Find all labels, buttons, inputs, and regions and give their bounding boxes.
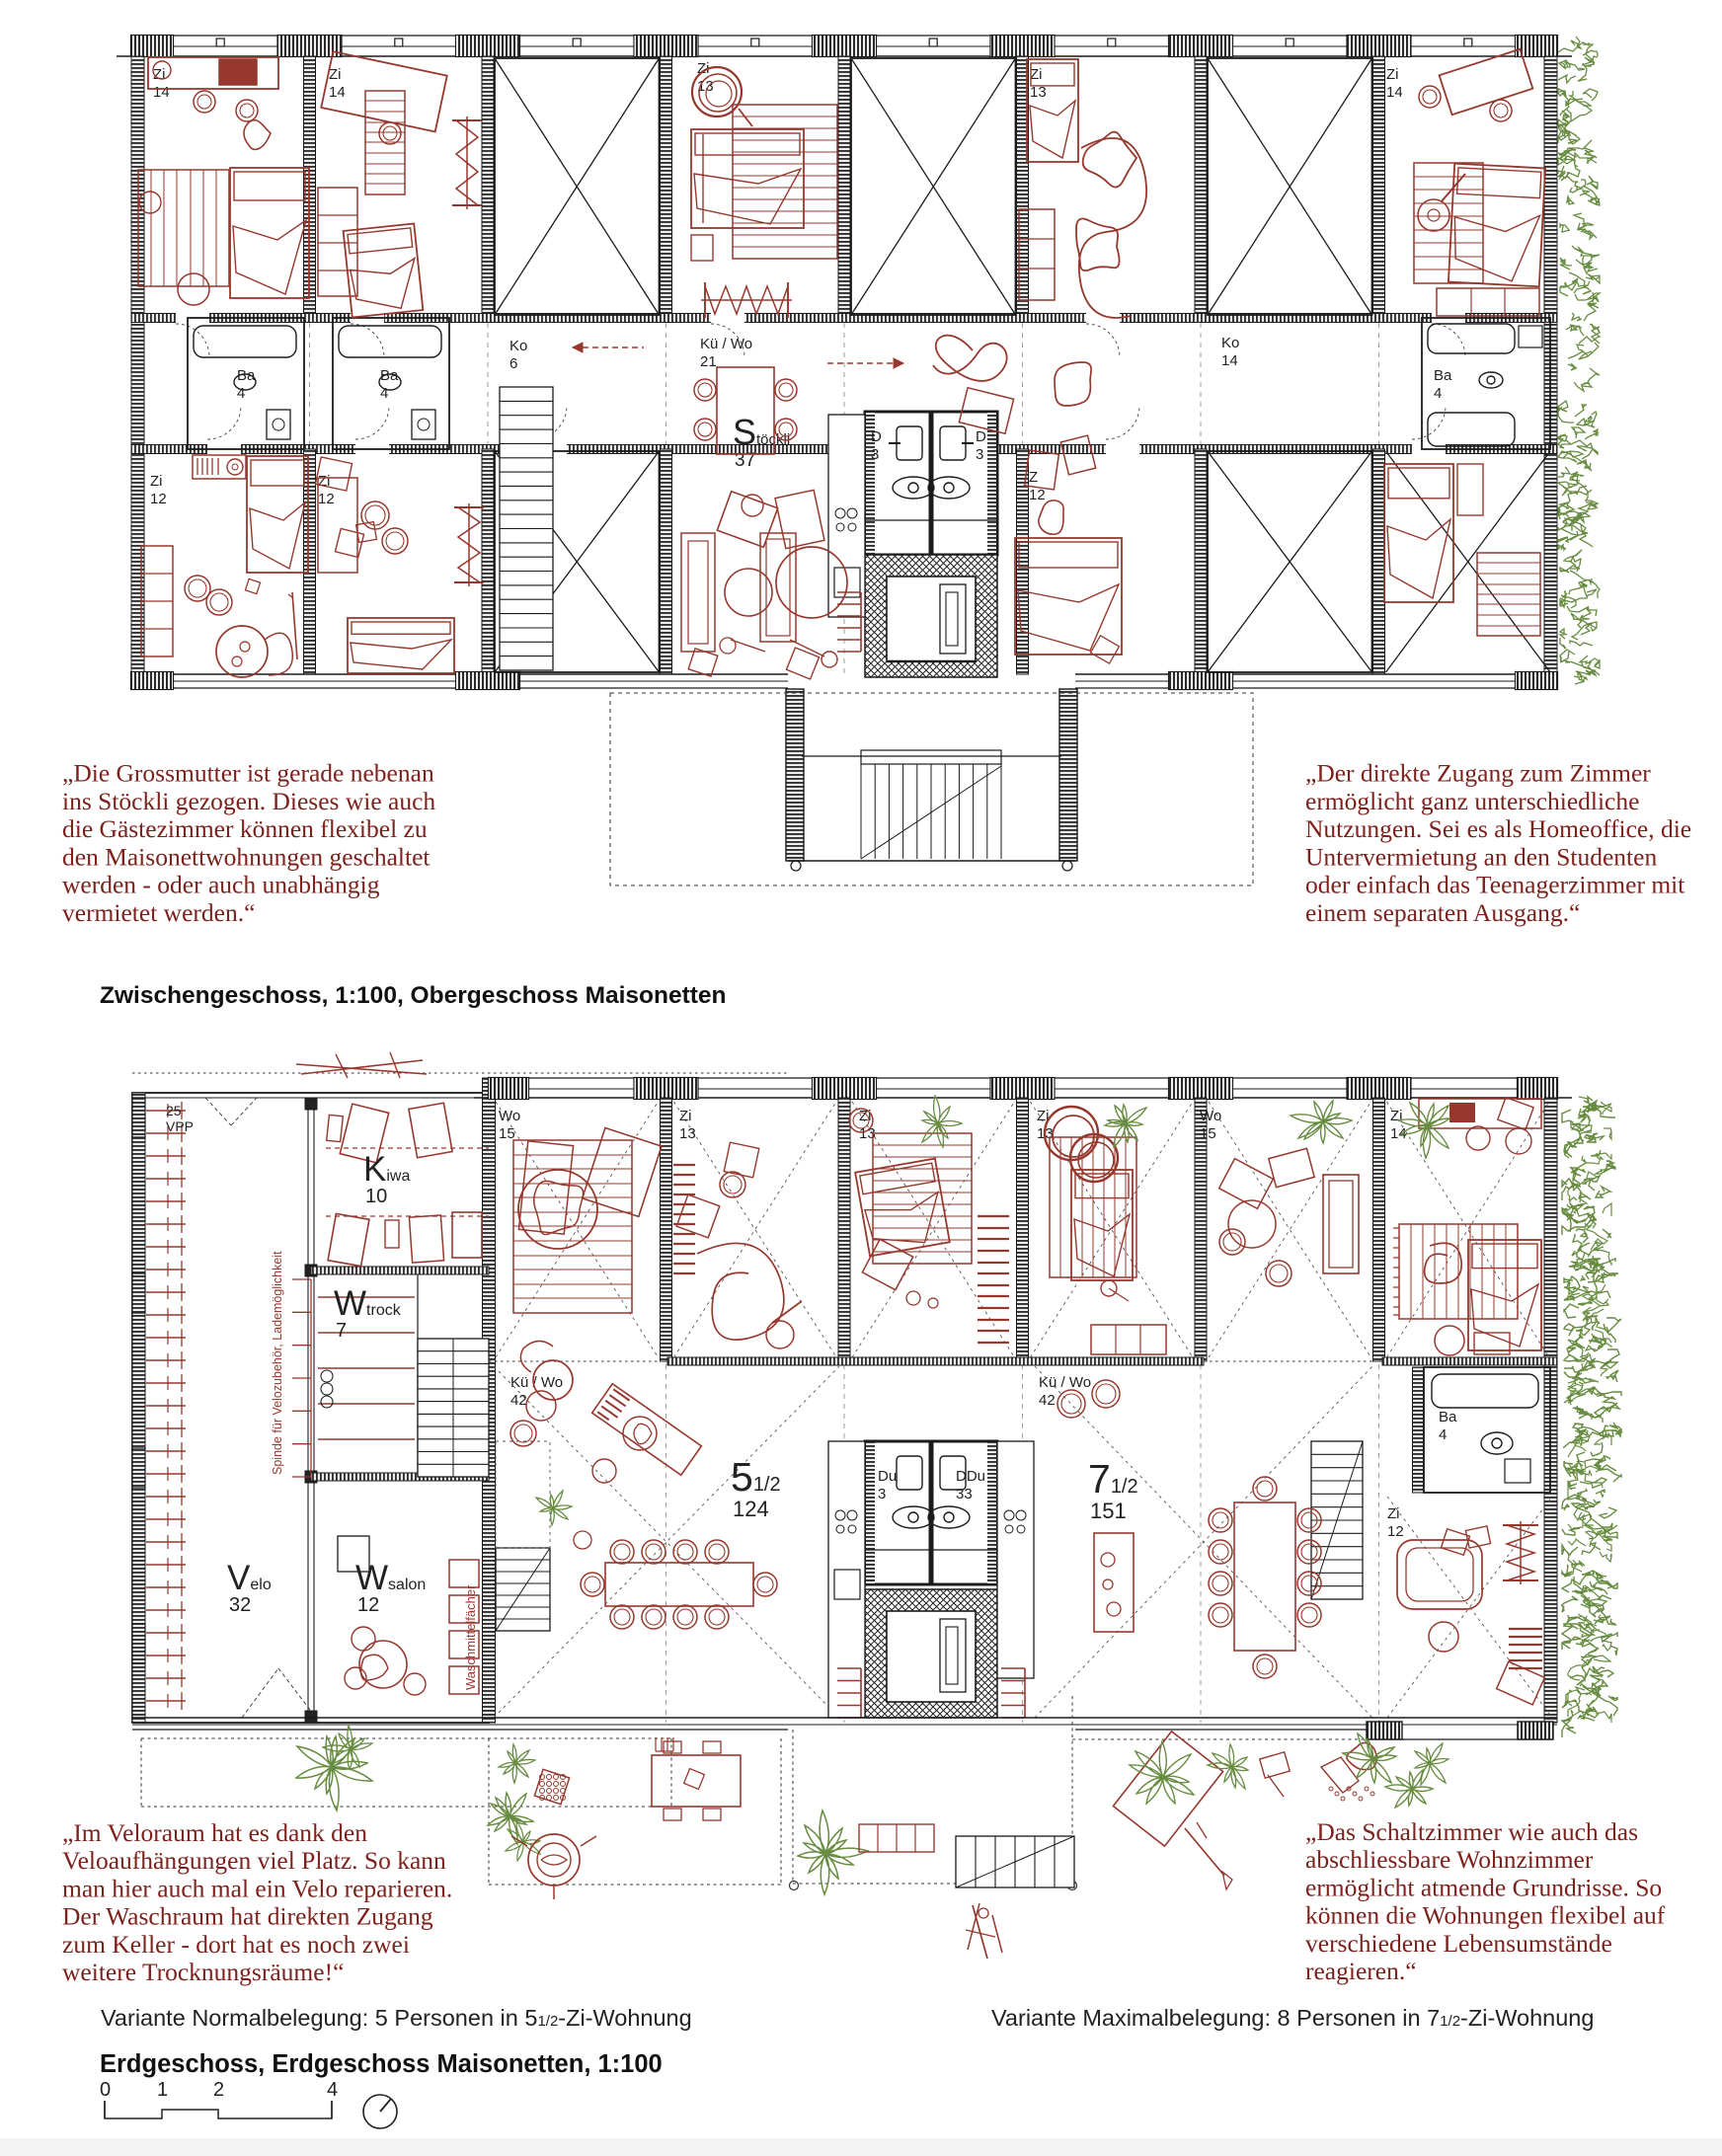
svg-text:„Das Schaltzimmer wie auch das: „Das Schaltzimmer wie auch das	[1305, 1817, 1638, 1846]
svg-text:die Gästezimmer können flexibe: die Gästezimmer können flexibel zu	[62, 814, 428, 843]
svg-text:Spinde für Velozubehör, Lademö: Spinde für Velozubehör, Lademöglichkeit	[271, 1251, 284, 1475]
svg-text:1: 1	[157, 2079, 168, 2101]
svg-text:Der Waschraum hat direkten Zug: Der Waschraum hat direkten Zugang	[62, 1902, 433, 1931]
svg-text:33: 33	[956, 1486, 973, 1502]
svg-text:124: 124	[733, 1497, 769, 1521]
svg-text:12: 12	[318, 491, 335, 507]
svg-text:12: 12	[1387, 1523, 1404, 1540]
svg-text:man hier auch mal ein Velo rep: man hier auch mal ein Velo reparieren.	[62, 1874, 452, 1902]
svg-text:Zi: Zi	[1386, 66, 1399, 83]
svg-text:ermöglicht atmende Grundrisse.: ermöglicht atmende Grundrisse. So	[1305, 1873, 1662, 1901]
svg-text:4: 4	[327, 2079, 338, 2101]
svg-text:42: 42	[510, 1392, 527, 1409]
svg-text:4: 4	[1439, 1426, 1447, 1443]
svg-text:Ba: Ba	[237, 367, 256, 384]
svg-text:3: 3	[976, 446, 983, 463]
svg-text:Zi: Zi	[1030, 66, 1043, 83]
svg-text:12: 12	[357, 1594, 379, 1616]
svg-text:Ko: Ko	[1221, 335, 1239, 351]
svg-text:10: 10	[365, 1186, 387, 1207]
svg-text:Variante Maximalbelegung: 8 Pe: Variante Maximalbelegung: 8 Personen in …	[991, 2005, 1594, 2031]
svg-text:15: 15	[1200, 1125, 1216, 1142]
svg-text:7: 7	[336, 1320, 347, 1342]
svg-text:zum Keller - dort hat es noch: zum Keller - dort hat es noch zwei	[62, 1930, 410, 1959]
svg-text:15: 15	[499, 1125, 515, 1142]
svg-text:2: 2	[213, 2079, 224, 2101]
svg-text:32: 32	[229, 1594, 251, 1616]
svg-text:D: D	[871, 428, 882, 445]
svg-text:42: 42	[1039, 1392, 1056, 1409]
svg-text:4: 4	[1434, 385, 1442, 402]
svg-text:12: 12	[1029, 487, 1046, 503]
svg-text:21: 21	[700, 353, 717, 370]
svg-text:Ba: Ba	[1439, 1409, 1457, 1425]
svg-text:12: 12	[150, 491, 167, 507]
svg-text:151: 151	[1090, 1499, 1127, 1523]
svg-text:Z: Z	[1029, 469, 1038, 486]
svg-text:Kü / Wo: Kü / Wo	[1039, 1374, 1091, 1391]
svg-text:Nutzungen. Sei es als Homeoffi: Nutzungen. Sei es als Homeoffice, die	[1305, 814, 1691, 843]
svg-text:14: 14	[329, 84, 346, 101]
svg-text:Untervermietung an den Student: Untervermietung an den Studenten	[1305, 842, 1657, 871]
svg-text:14: 14	[153, 84, 170, 101]
svg-text:werden - oder auch unabhängig: werden - oder auch unabhängig	[62, 871, 380, 899]
svg-text:reagieren.“: reagieren.“	[1305, 1957, 1417, 1985]
svg-text:37: 37	[735, 450, 755, 471]
svg-text:Kü / Wo: Kü / Wo	[700, 336, 752, 352]
svg-text:„Im Veloraum hat es dank den: „Im Veloraum hat es dank den	[62, 1818, 367, 1847]
svg-text:VPP: VPP	[166, 1118, 194, 1134]
svg-text:25: 25	[166, 1103, 182, 1118]
svg-text:3: 3	[878, 1486, 886, 1502]
svg-text:den Maisonettwohnungen geschal: den Maisonettwohnungen geschaltet	[62, 842, 430, 871]
svg-text:6: 6	[509, 355, 517, 372]
svg-text:„Die Grossmutter ist gerade ne: „Die Grossmutter ist gerade nebenan	[62, 759, 434, 788]
svg-text:Zi: Zi	[150, 473, 163, 490]
svg-text:Ba: Ba	[380, 367, 399, 384]
svg-text:Erdgeschoss, Erdgeschoss Maiso: Erdgeschoss, Erdgeschoss Maisonetten, 1:…	[100, 2050, 663, 2078]
svg-text:Ba: Ba	[1434, 367, 1452, 384]
svg-text:D: D	[976, 428, 986, 445]
svg-text:abschliessbare Wohnzimmer: abschliessbare Wohnzimmer	[1305, 1845, 1594, 1874]
svg-text:Variante Normalbelegung: 5 Per: Variante Normalbelegung: 5 Personen in 5…	[101, 2005, 692, 2031]
svg-text:können die Wohnungen flexibel: können die Wohnungen flexibel auf	[1305, 1901, 1666, 1930]
svg-text:verschiedene Lebensumstände: verschiedene Lebensumstände	[1305, 1929, 1612, 1958]
svg-text:3: 3	[871, 446, 879, 463]
svg-text:14: 14	[1221, 352, 1238, 369]
svg-text:Zi: Zi	[1387, 1505, 1400, 1522]
svg-text:ermöglicht ganz unterschiedlic: ermöglicht ganz unterschiedliche	[1305, 787, 1639, 815]
svg-text:Zwischengeschoss, 1:100, Oberg: Zwischengeschoss, 1:100, Obergeschoss Ma…	[100, 982, 727, 1009]
svg-text:Zi: Zi	[329, 66, 342, 83]
svg-text:4: 4	[380, 385, 388, 402]
svg-text:Wo: Wo	[499, 1108, 520, 1124]
svg-text:Ko: Ko	[509, 338, 527, 354]
svg-text:Wo: Wo	[1200, 1108, 1221, 1124]
svg-text:weitere Trocknungsräume!“: weitere Trocknungsräume!“	[62, 1958, 344, 1986]
svg-text:„Der direkte Zugang zum Zimmer: „Der direkte Zugang zum Zimmer	[1305, 759, 1651, 788]
svg-text:4: 4	[237, 385, 245, 402]
svg-text:14: 14	[1386, 84, 1403, 101]
svg-text:Waschmittelfächer: Waschmittelfächer	[463, 1584, 478, 1690]
svg-text:vermietet werden.“: vermietet werden.“	[62, 898, 255, 927]
svg-text:Zi: Zi	[679, 1108, 692, 1124]
svg-text:oder einfach das Teenagerzimme: oder einfach das Teenagerzimmer mit	[1305, 871, 1684, 899]
svg-text:Du: Du	[878, 1468, 897, 1485]
svg-text:0: 0	[100, 2079, 111, 2101]
svg-text:ins Stöckli gezogen. Dieses wi: ins Stöckli gezogen. Dieses wie auch	[62, 787, 435, 815]
svg-text:13: 13	[679, 1125, 696, 1142]
svg-text:einem separaten Ausgang.“: einem separaten Ausgang.“	[1305, 898, 1580, 927]
svg-text:DDu: DDu	[956, 1468, 985, 1485]
svg-text:Veloaufhängungen viel Platz. S: Veloaufhängungen viel Platz. So kann	[62, 1846, 446, 1875]
svg-text:Kü / Wo: Kü / Wo	[510, 1374, 563, 1391]
